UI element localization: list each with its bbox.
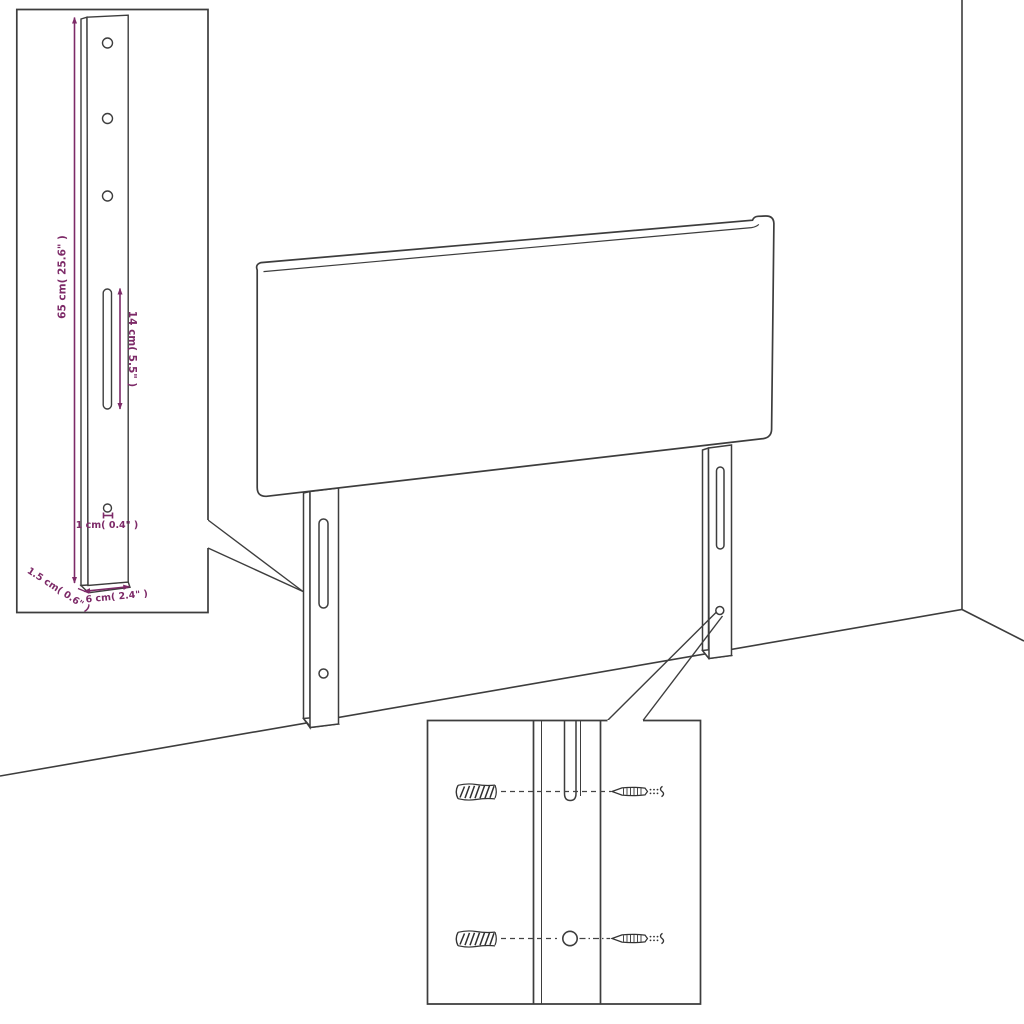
assembly-diagram: 65 cm( 25.6" ) 14 cm( 5.5" ) 1 cm( 0.4" … (0, 0, 1024, 1024)
bracket-hole-4 (104, 504, 112, 512)
mounting-slot (717, 467, 725, 549)
panel-outline (257, 216, 774, 496)
top-inset-callout-lines (208, 520, 303, 592)
bracket-detail-inset: 65 cm( 25.6" ) 14 cm( 5.5" ) 1 cm( 0.4" … (16, 9, 208, 614)
bracket-slot (103, 289, 111, 409)
mounting-slot (319, 519, 328, 608)
label-hole-size: 1 cm( 0.4" ) (76, 520, 139, 531)
diagram-canvas: 65 cm( 25.6" ) 14 cm( 5.5" ) 1 cm( 0.4" … (0, 0, 1024, 1024)
bracket-hole-3 (103, 191, 113, 201)
headboard-left-leg (304, 488, 339, 728)
label-bracket-height: 65 cm( 25.6" ) (57, 235, 69, 319)
hole-closeup (563, 931, 577, 945)
mounting-hole (716, 607, 724, 615)
bracket-drawing (81, 15, 130, 593)
headboard-right-leg (703, 445, 732, 659)
fastening-detail-inset (427, 720, 701, 1005)
headboard-panel (257, 216, 774, 496)
right-leg-side-face (703, 448, 709, 658)
left-leg-side-face (304, 492, 311, 728)
bracket-hole-2 (103, 114, 113, 124)
label-slot-length: 14 cm( 5.5" ) (126, 311, 138, 387)
mounting-hole (319, 669, 328, 678)
bracket-hole-1 (103, 38, 113, 48)
